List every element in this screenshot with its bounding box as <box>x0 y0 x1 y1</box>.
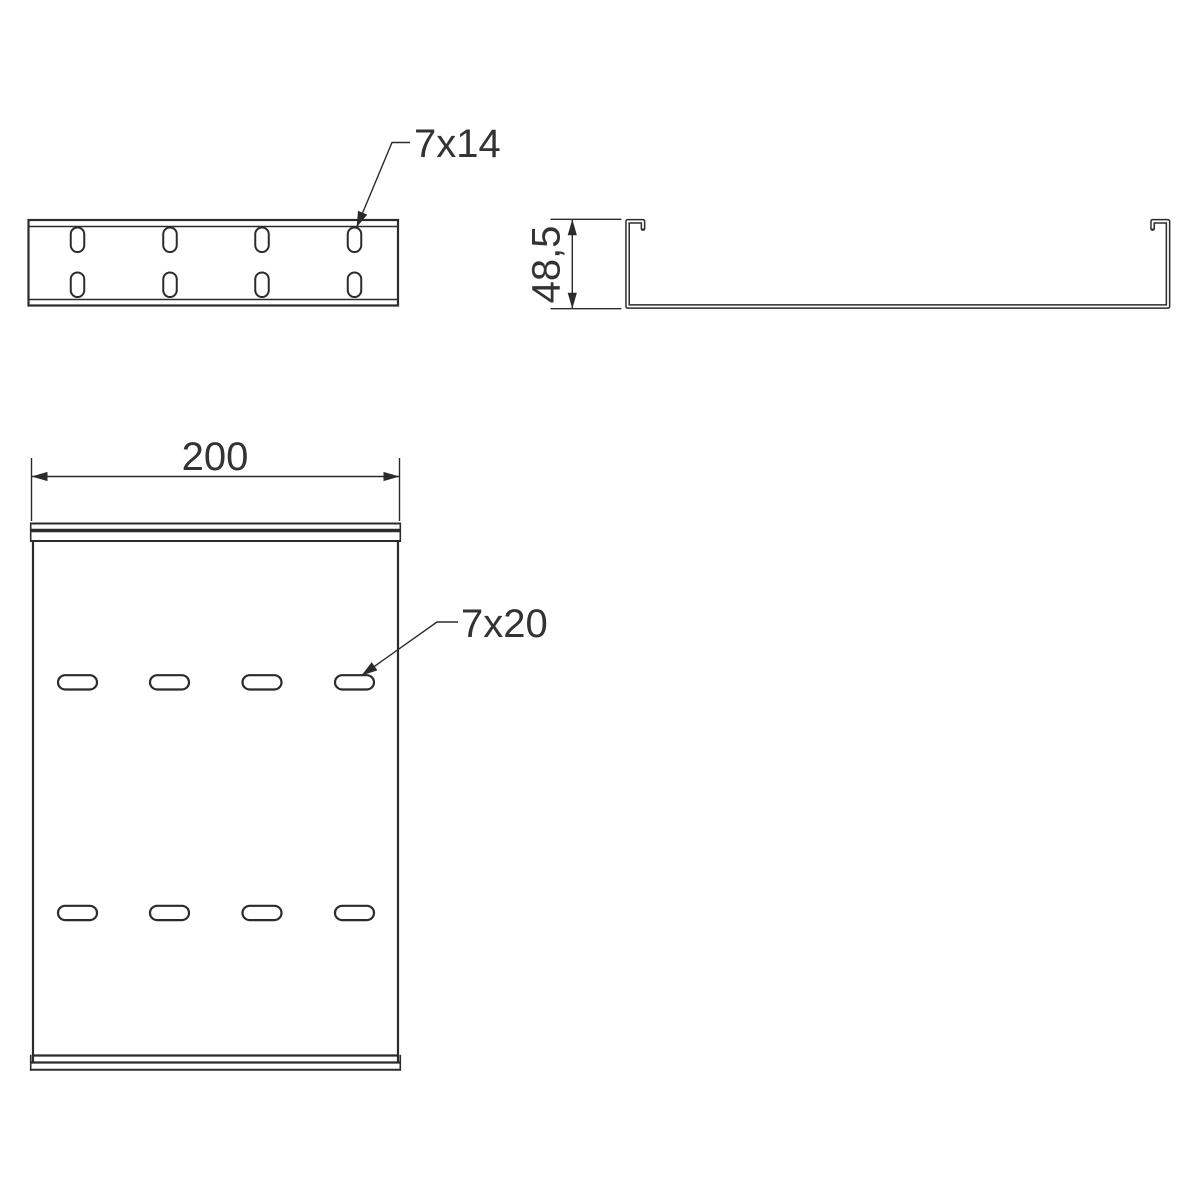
width-dim-value: 200 <box>182 435 249 479</box>
plan-slot-size-label: 7x20 <box>461 602 548 646</box>
front-slot <box>71 228 85 253</box>
plan-slot <box>58 675 97 689</box>
height-dim-arrow-up-icon <box>568 219 577 235</box>
plan-slot <box>243 906 282 920</box>
technical-drawing: 7x14 48,5 <box>0 0 1200 1200</box>
plan-slot <box>243 675 282 689</box>
plan-slot-leader-line <box>362 622 459 676</box>
front-slot <box>255 228 269 253</box>
front-slot-size-label: 7x14 <box>414 122 501 166</box>
plan-view: 200 7x20 <box>31 435 548 1071</box>
plan-slot <box>150 675 189 689</box>
channel-profile-outer <box>628 221 1168 306</box>
width-dim-arrow-left-icon <box>32 472 48 481</box>
front-view: 7x14 <box>29 122 501 306</box>
plan-slot <box>335 906 374 920</box>
channel-profile-core <box>628 221 1168 306</box>
height-dim-value: 48,5 <box>525 226 569 304</box>
plan-slot <box>58 906 97 920</box>
front-slot <box>255 273 269 298</box>
plan-slot <box>335 675 374 689</box>
front-slot <box>163 228 177 253</box>
front-slot <box>348 273 362 298</box>
plan-slot <box>150 906 189 920</box>
width-dim-arrow-right-icon <box>384 472 400 481</box>
front-slot <box>348 228 362 253</box>
profile-section: 48,5 <box>525 219 1169 308</box>
height-dim-arrow-down-icon <box>568 293 577 309</box>
front-slot <box>163 273 177 298</box>
front-slot <box>71 273 85 298</box>
front-slot-leader-line <box>357 143 411 228</box>
